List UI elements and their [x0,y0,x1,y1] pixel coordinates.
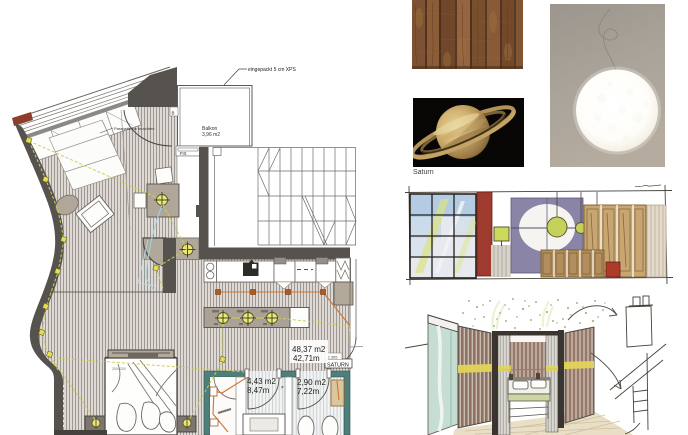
svg-text:≠: ≠ [281,385,284,391]
svg-text:48,37 m2: 48,37 m2 [292,345,326,354]
svg-text:4,43 m2: 4,43 m2 [247,377,276,386]
svg-text:42,71m: 42,71m [293,354,320,363]
svg-text:2.305: 2.305 [328,354,339,359]
svg-text:7,22m: 7,22m [297,387,320,396]
svg-text:2,90 m2: 2,90 m2 [297,378,326,387]
svg-text:FIX: FIX [180,151,187,156]
svg-text:B: B [172,111,175,116]
svg-text:3,96 m2: 3,96 m2 [202,132,220,138]
svg-text:8,47m: 8,47m [247,386,270,395]
svg-text:eingepackt 5 cm XPS: eingepackt 5 cm XPS [248,67,296,73]
svg-text:Parapethöhe beachten: Parapethöhe beachten [114,126,154,131]
svg-text:SATURN: SATURN [327,363,349,369]
